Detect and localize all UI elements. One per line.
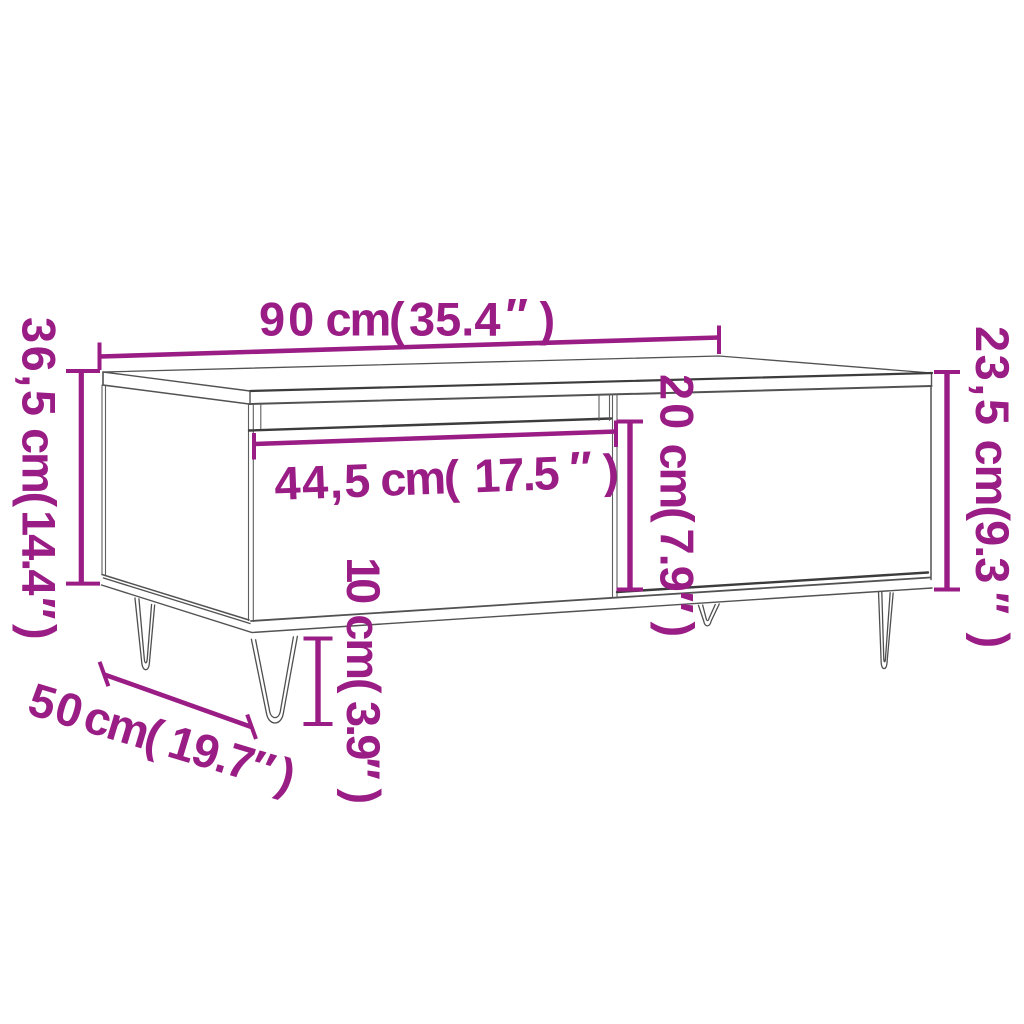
svg-text:20cm(7.9″): 20cm(7.9″) [651, 374, 704, 637]
svg-text:23,5cm(9.3″): 23,5cm(9.3″) [966, 326, 1019, 648]
svg-text:90cm(35.4″): 90cm(35.4″) [259, 289, 555, 346]
svg-text:10cm(3.9″): 10cm(3.9″) [337, 557, 390, 804]
svg-text:50cm(19.7″): 50cm(19.7″) [23, 672, 302, 802]
svg-text:44,5cm(17.5″): 44,5cm(17.5″) [273, 440, 620, 510]
svg-text:36,5cm(14.4″): 36,5cm(14.4″) [13, 317, 66, 640]
